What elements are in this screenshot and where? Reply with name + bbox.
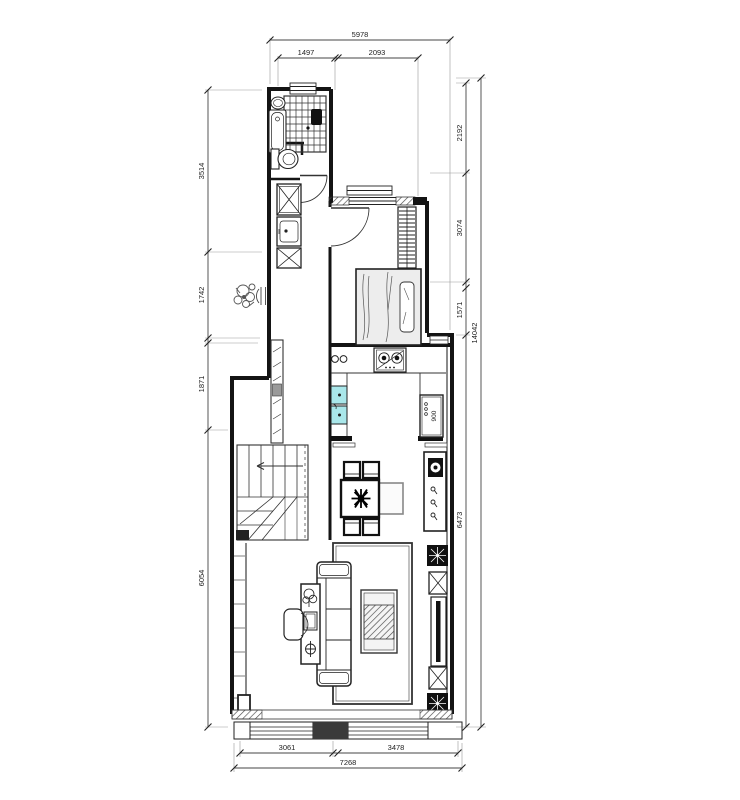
- dim-bottom-seg2: 3478: [388, 743, 405, 752]
- cabinet-icon: [429, 667, 447, 689]
- bathtub-icon: [269, 110, 286, 153]
- tv-console-icon: [431, 597, 446, 666]
- dim-bottom-total: 7268: [340, 758, 357, 767]
- dim-top-total: 5978: [352, 30, 369, 39]
- wall-cabinet-unit: [424, 452, 446, 531]
- bathroom-door-arc: [300, 176, 327, 203]
- sofa-icon: [317, 562, 351, 686]
- table-extension: [379, 483, 403, 514]
- dining-chair: [344, 462, 360, 478]
- toilet-icon: [271, 149, 298, 169]
- cabinet-icon: [429, 572, 447, 594]
- dim-top-seg2: 2093: [369, 48, 386, 57]
- jog-window-icon: [430, 336, 448, 344]
- floor-plan-drawing: 5978 1497 2093 3514 1742 1871 6054 2192 …: [0, 0, 740, 800]
- window-pier: [313, 722, 348, 739]
- radiator-icon: [398, 207, 416, 268]
- dim-right-seg2: 3074: [455, 220, 464, 237]
- kitchen-sink-icon: [331, 386, 347, 424]
- desk-icon: [301, 584, 320, 664]
- kitchen: 900: [331, 348, 447, 447]
- dining-table: [341, 480, 403, 517]
- staircase: [237, 445, 308, 540]
- living-room: [232, 543, 462, 739]
- dining-area: [341, 452, 446, 535]
- dim-right-seg3: 1571: [455, 302, 464, 319]
- hallway: [234, 284, 308, 712]
- shower-area-icon: [284, 96, 326, 152]
- storage-cabinet-icon: [277, 248, 301, 268]
- pillow-icon: [400, 282, 414, 332]
- dim-left-seg2: 1742: [197, 287, 206, 304]
- plant-icon: [234, 284, 255, 308]
- tv-wall: [427, 545, 448, 714]
- dining-chair: [363, 519, 379, 535]
- dim-left-seg3: 1871: [197, 376, 206, 393]
- dim-right-seg4: 6473: [455, 512, 464, 529]
- dim-left-seg1: 3514: [197, 163, 206, 180]
- washing-machine-icon: [277, 184, 301, 215]
- window-icon: [347, 186, 392, 195]
- glass-guardrail: [271, 340, 283, 443]
- shower-head-icon: [311, 109, 322, 125]
- cabinet-width-label: 900: [431, 410, 438, 421]
- dim-top-seg1: 1497: [298, 48, 315, 57]
- monitor-icon: [304, 612, 317, 630]
- wall-niche-icon: [256, 287, 265, 305]
- bedroom-door-arc: [331, 208, 369, 246]
- wall-pier: [236, 530, 249, 540]
- laundry-column: [277, 184, 301, 268]
- bed-icon: [356, 269, 421, 345]
- gas-stove-icon: [374, 348, 406, 372]
- dining-chair: [363, 462, 379, 478]
- hob-rings-icon: [332, 356, 347, 363]
- bedroom: [329, 186, 448, 345]
- left-wall-window-ticks: [234, 556, 245, 698]
- washbasin-icon: [271, 97, 285, 109]
- dining-chair: [344, 519, 360, 535]
- window-wall: [329, 197, 427, 205]
- ornament-plant-icon: [427, 545, 448, 566]
- stair-direction-arrow-icon: [257, 463, 303, 470]
- window-icon: [290, 83, 316, 94]
- dim-left-seg4: 6054: [197, 570, 206, 587]
- column-pier: [238, 695, 250, 712]
- coffee-table-icon: [361, 590, 397, 653]
- laundry-sink-icon: [277, 217, 301, 246]
- bay-window-icon: [234, 722, 462, 739]
- dim-bottom-seg1: 3061: [279, 743, 296, 752]
- tv-screen-icon: [436, 601, 441, 662]
- floor-plan-canvas: 5978 1497 2093 3514 1742 1871 6054 2192 …: [0, 0, 740, 800]
- dim-right-seg1: 2192: [455, 125, 464, 142]
- dim-right-total: 14042: [470, 323, 479, 344]
- bottom-sill: [232, 710, 452, 719]
